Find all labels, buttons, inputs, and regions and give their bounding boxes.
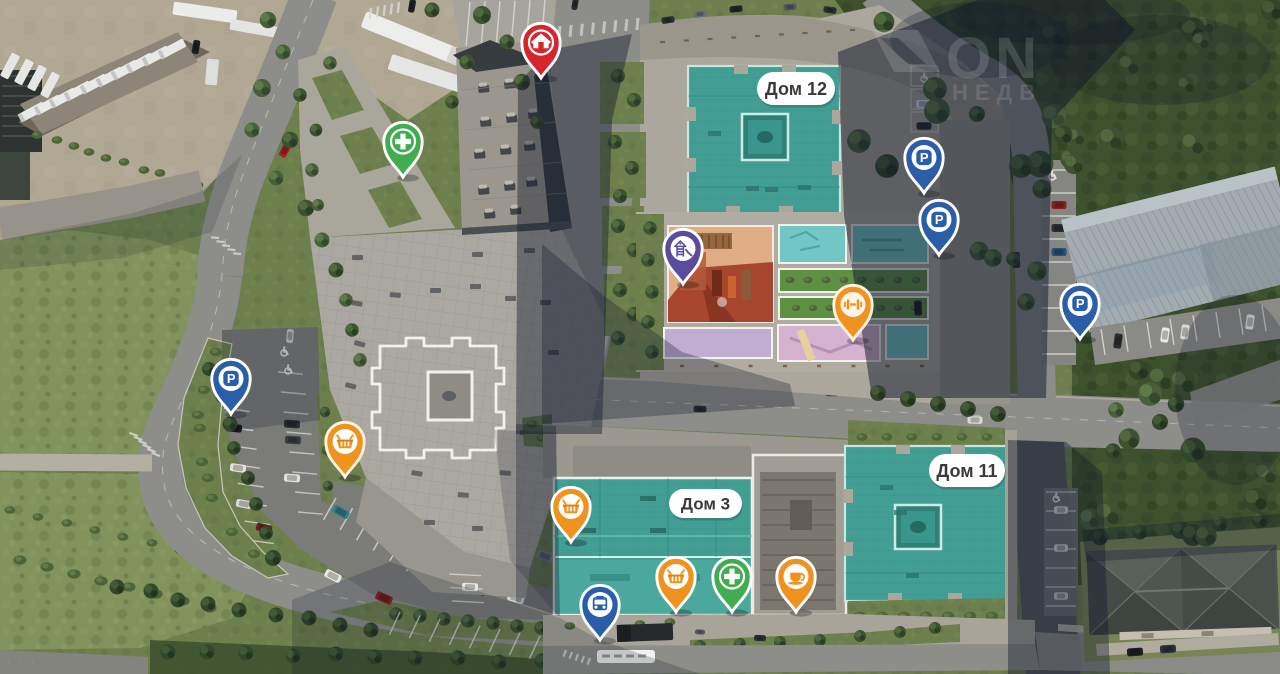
svg-text:P: P: [1076, 296, 1085, 311]
svg-text:Дом 11: Дом 11: [936, 461, 997, 481]
svg-text:P: P: [935, 212, 944, 227]
svg-text:P: P: [227, 371, 236, 386]
svg-text:Дом 3: Дом 3: [681, 494, 730, 513]
svg-text:Дом 12: Дом 12: [765, 79, 827, 99]
svg-text:НЕДВ: НЕДВ: [952, 80, 1042, 105]
svg-text:P: P: [920, 150, 929, 165]
